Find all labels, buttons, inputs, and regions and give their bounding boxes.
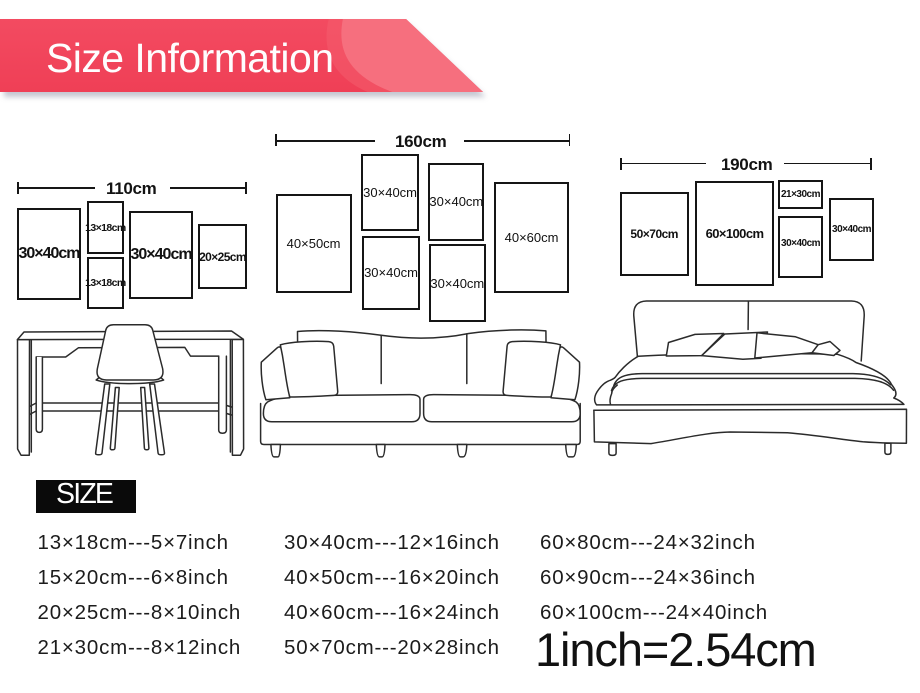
svg-text:Size Information: Size Information xyxy=(46,35,333,81)
